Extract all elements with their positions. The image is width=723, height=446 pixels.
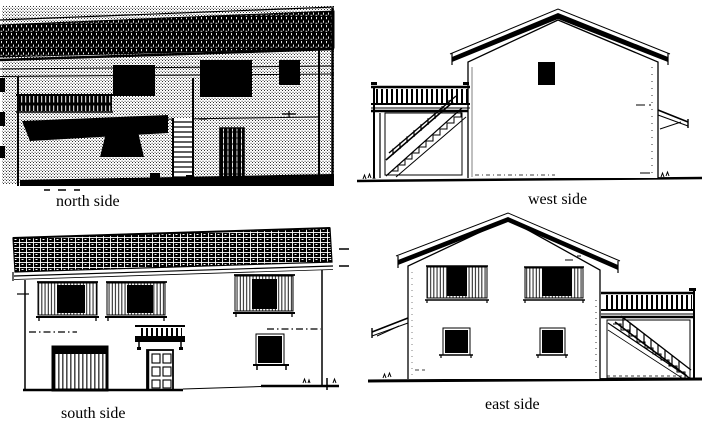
east-elevation-label: east side xyxy=(485,396,540,414)
south-lower-window xyxy=(253,334,289,370)
west-elevation-drawing xyxy=(355,5,703,183)
north-balcony-railing xyxy=(16,95,113,112)
south-upper-window-2 xyxy=(105,282,167,321)
east-gable-wall xyxy=(408,219,600,379)
south-roof xyxy=(13,228,349,281)
south-upper-window-1 xyxy=(36,282,99,321)
east-upper-window-1 xyxy=(425,266,489,303)
north-elevation-label: north side xyxy=(56,193,120,211)
south-upper-window-3 xyxy=(233,275,295,317)
south-elevation-label: south side xyxy=(61,405,125,423)
south-garage-door xyxy=(53,347,107,390)
elevation-sheet: north side west side south side east sid… xyxy=(0,0,723,446)
east-awning xyxy=(372,318,408,338)
south-entry-door xyxy=(135,326,185,390)
south-elevation-drawing xyxy=(5,222,355,394)
east-elevation-drawing xyxy=(365,210,703,385)
west-elevation-label: west side xyxy=(528,191,587,209)
north-elevation-drawing xyxy=(0,0,340,192)
north-door xyxy=(220,128,244,184)
east-staircase xyxy=(608,316,691,380)
west-attic-window xyxy=(538,62,555,85)
east-upper-window-2 xyxy=(523,267,585,303)
east-balcony-railing xyxy=(601,288,696,317)
